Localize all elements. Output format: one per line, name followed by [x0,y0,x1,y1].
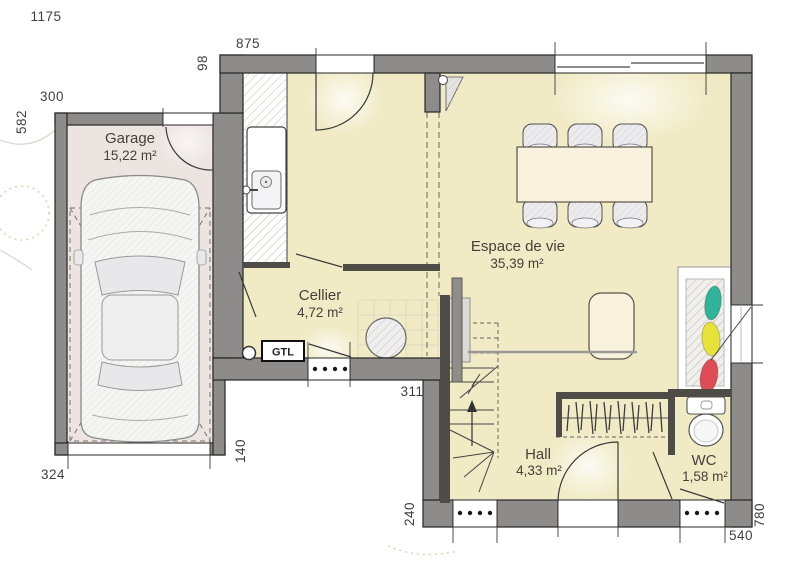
garage-room-area: 15,22 m² [103,148,157,163]
garage-room-name: Garage [105,130,155,147]
toilet [687,397,725,446]
hall-room-area: 4,33 m² [516,463,562,478]
car-mirror-left [74,250,83,265]
dim-540: 540 [729,528,753,543]
dim-1175: 1175 [30,9,61,24]
garage-door-opening [68,443,210,455]
wall-stub [425,73,440,112]
dim-98: 98 [195,55,210,71]
wc-room-name: WC [692,452,717,469]
wc-room-area: 1,58 m² [682,469,728,484]
coffee-table [589,293,634,359]
dim-582: 582 [14,110,29,134]
window-wc [680,500,725,527]
window-cellier [308,358,350,380]
door-opening-garage-service [163,113,213,125]
chair [568,199,602,228]
dim-875: 875 [236,36,260,51]
chair [613,199,647,228]
window-top [555,55,706,73]
dim-240: 240 [402,502,417,526]
door-opening-top [316,55,374,73]
cellier-room-name: Cellier [299,287,342,304]
dim-300: 300 [40,89,64,104]
floor-plan-drawing: GTL Garage 15,22 m² Cellier 4,72 m² Espa… [0,0,800,562]
dim-780: 780 [752,503,767,527]
dim-311: 311 [400,384,423,399]
floor-plan: GTL Garage 15,22 m² Cellier 4,72 m² Espa… [0,0,800,562]
entry-door-opening [558,500,618,527]
living-room-name: Espace de vie [471,238,565,255]
water-heater [366,318,406,358]
car-roof [102,295,178,360]
window-right [731,305,752,363]
dim-140: 140 [233,439,248,463]
window-bottom-left [453,500,497,527]
chair [523,199,557,228]
car-mirror-right [197,250,206,265]
cellier-room-area: 4,72 m² [297,305,343,320]
living-room-area: 35,39 m² [490,256,544,271]
car-windshield [95,256,185,295]
hall-cabinet [678,267,731,394]
kitchen-sink [242,127,286,213]
dining-table [517,147,652,202]
car-top-view [74,176,206,443]
dim-324: 324 [41,467,65,482]
hall-room-name: Hall [525,446,551,463]
gtl-label: GTL [272,347,294,359]
